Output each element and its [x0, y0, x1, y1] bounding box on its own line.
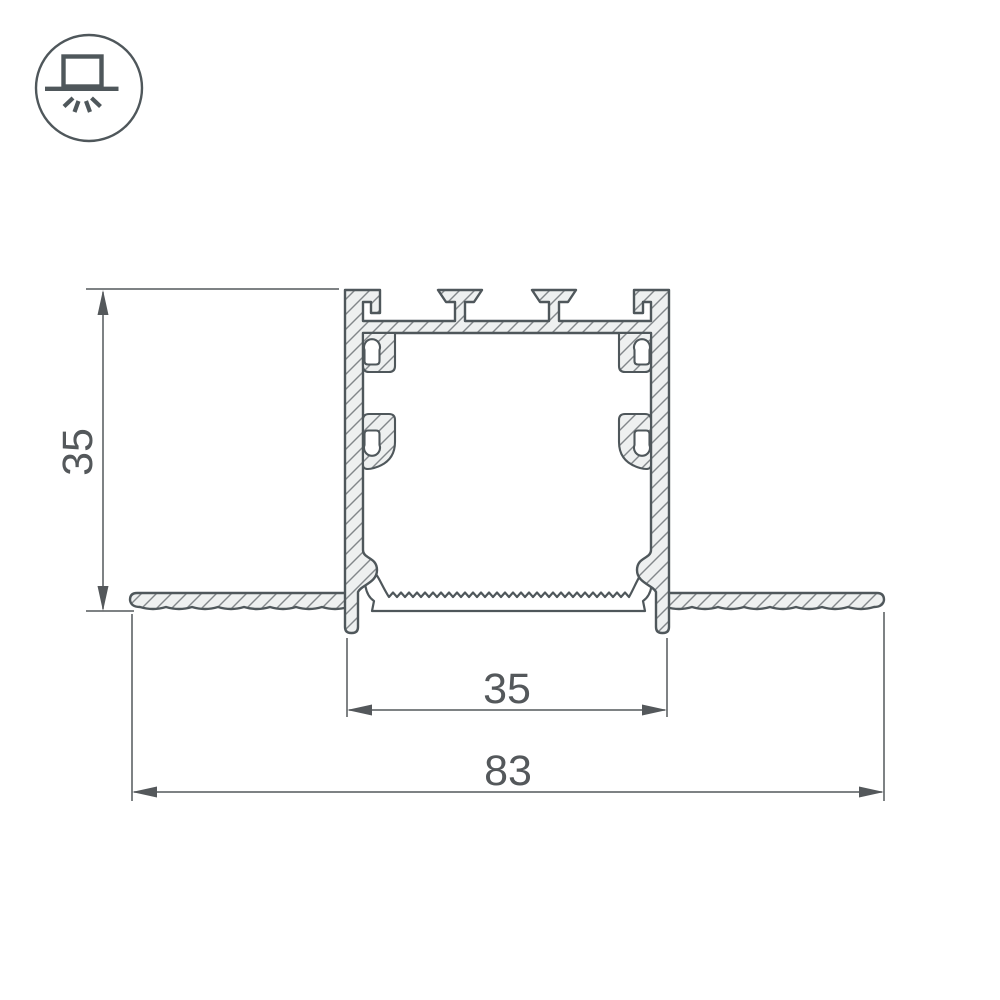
- profile-geometry: [130, 290, 884, 633]
- left-drywall-wing: [130, 593, 356, 609]
- screw-cavity-lower-right: [634, 431, 650, 456]
- dimension-annotations: 35 35 83: [54, 289, 884, 801]
- arrow-right-icon: [642, 705, 667, 716]
- arrow-down-icon: [98, 586, 109, 611]
- screw-cavity-upper-left: [364, 339, 380, 364]
- overall-width-dimension-label: 83: [484, 747, 532, 795]
- screw-cavity-upper-right: [634, 339, 650, 364]
- width-dimension-label: 35: [483, 665, 531, 713]
- icon-light-rays: [64, 98, 101, 112]
- diffuser-plate: [365, 570, 652, 611]
- screw-cavity-lower-left: [364, 431, 380, 456]
- technical-drawing-page: 35 35 83: [0, 0, 1000, 1000]
- icon-fixture-box: [64, 57, 102, 87]
- height-dimension-label: 35: [54, 428, 102, 476]
- arrow-left-icon: [347, 705, 372, 716]
- arrow-up-icon: [98, 290, 109, 315]
- right-drywall-wing: [658, 593, 884, 609]
- arrow-left-icon: [132, 787, 157, 798]
- profile-cross-section-drawing: 35 35 83: [0, 0, 1000, 1000]
- recessed-downlight-icon: [36, 35, 142, 141]
- arrow-right-icon: [859, 787, 884, 798]
